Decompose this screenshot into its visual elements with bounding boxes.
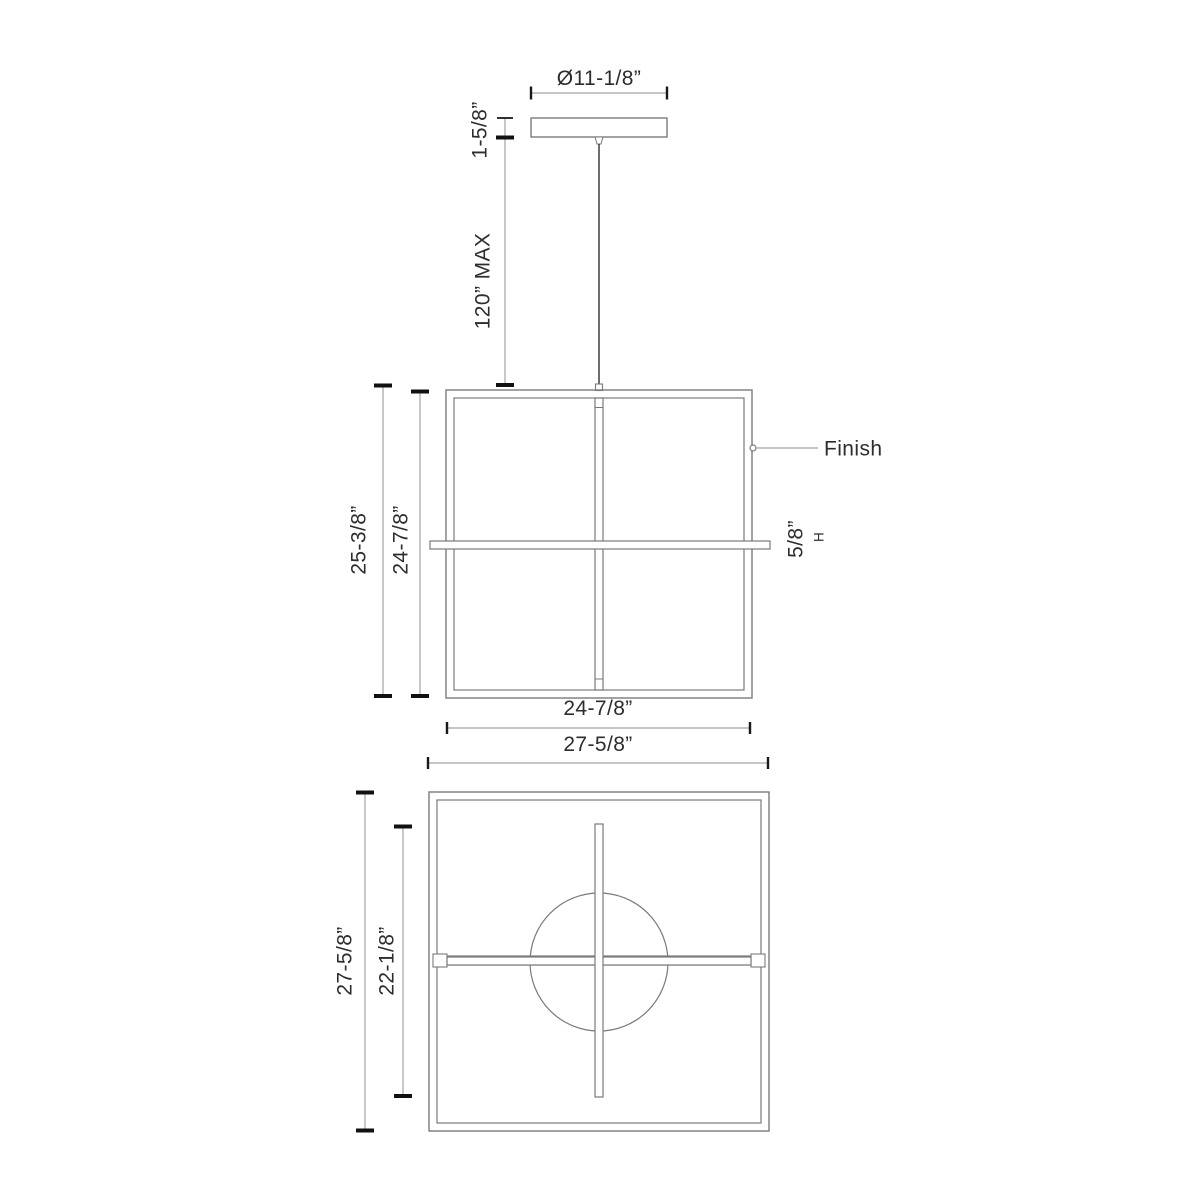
plan-view: 27-5/8” 22-1/8” bbox=[333, 792, 769, 1131]
plan-overall-label: 27-5/8” bbox=[333, 926, 356, 995]
cord-max-label: 120” MAX bbox=[471, 233, 494, 330]
canopy bbox=[531, 118, 667, 137]
front-overall-height-label: 25-3/8” bbox=[347, 505, 370, 574]
finish-label: Finish bbox=[824, 437, 882, 460]
cord-strain-relief bbox=[595, 137, 603, 144]
front-view: Finish 5/8” H 25-3/8” 24-7/8” 24-7/8” 27… bbox=[347, 385, 882, 769]
drawing-canvas: Ø11-1/8” 1-5/8” 120” MAX Finish 5/8” H bbox=[0, 0, 1200, 1200]
horizontal-bar-end-left bbox=[433, 954, 447, 967]
canopy-diameter-label: Ø11-1/8” bbox=[557, 67, 642, 90]
bar-height-suffix-label: H bbox=[812, 532, 827, 542]
canopy-assembly: Ø11-1/8” 1-5/8” 120” MAX bbox=[468, 67, 667, 391]
plan-bar-length-label: 22-1/8” bbox=[375, 926, 398, 995]
finish-leader-dot bbox=[750, 445, 756, 451]
horizontal-bar-front bbox=[430, 541, 770, 549]
technical-drawing: Ø11-1/8” 1-5/8” 120” MAX Finish 5/8” H bbox=[0, 0, 1200, 1200]
canopy-height-label: 1-5/8” bbox=[468, 101, 491, 158]
front-bar-width-label: 27-5/8” bbox=[563, 733, 632, 756]
front-frame-height-label: 24-7/8” bbox=[389, 505, 412, 574]
vertical-bar-plan bbox=[595, 824, 603, 1097]
horizontal-bar-end-right bbox=[751, 954, 765, 967]
front-frame-width-label: 24-7/8” bbox=[563, 697, 632, 720]
bar-height-label: 5/8” bbox=[784, 520, 807, 558]
